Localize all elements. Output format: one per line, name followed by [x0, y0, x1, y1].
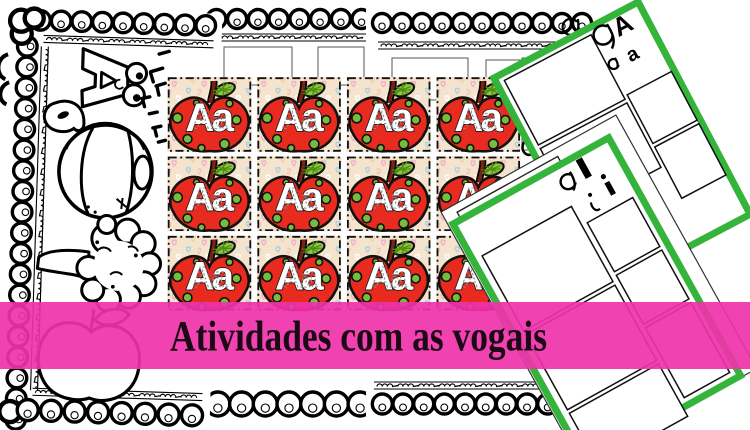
svg-text:Atividades com as vogais: Atividades com as vogais — [170, 314, 547, 361]
